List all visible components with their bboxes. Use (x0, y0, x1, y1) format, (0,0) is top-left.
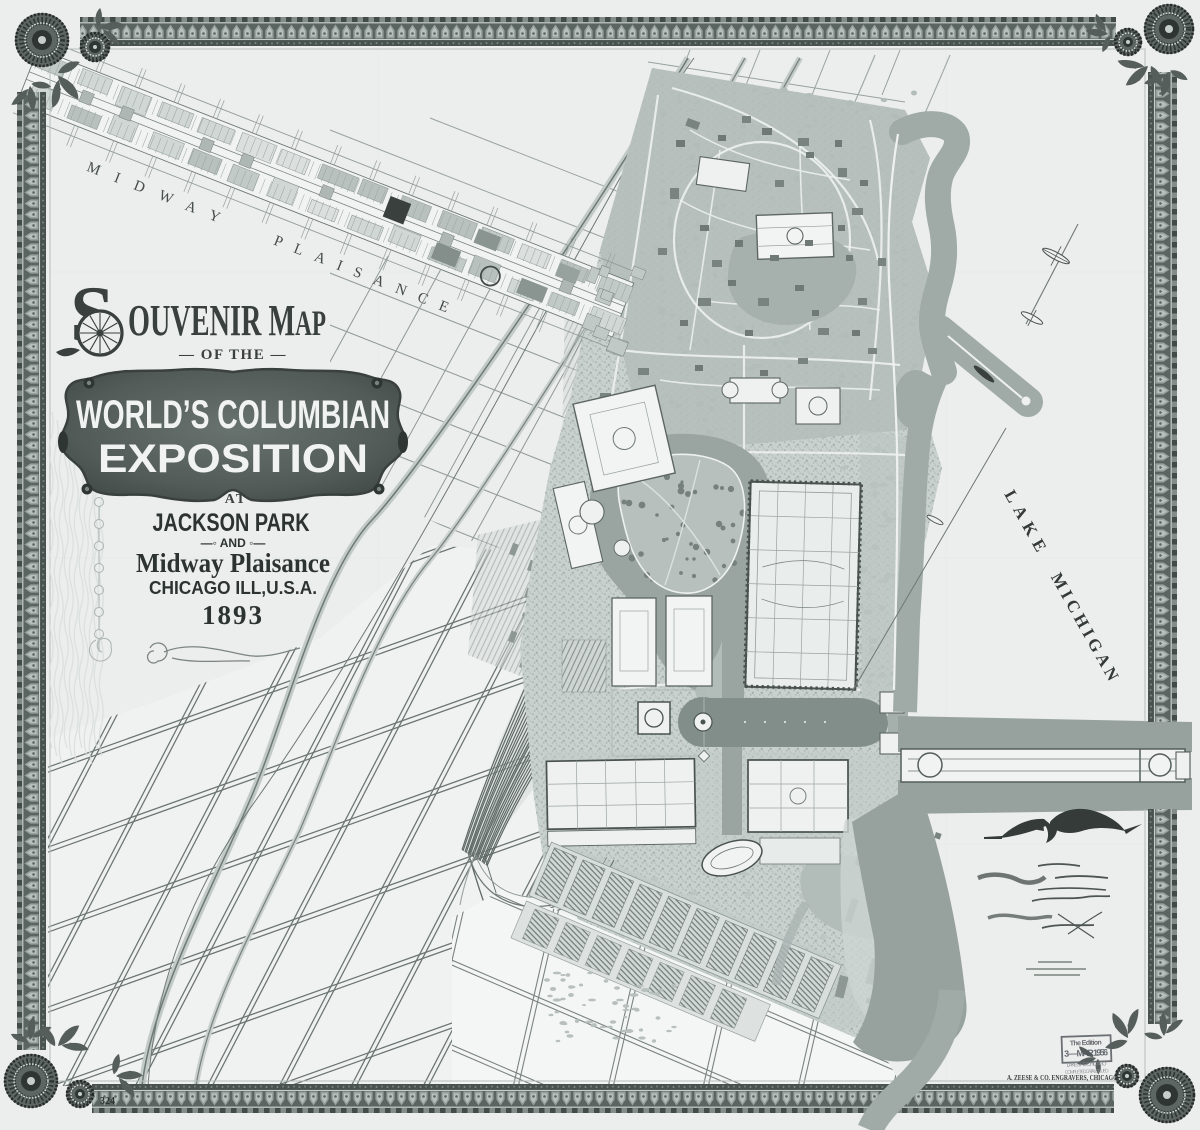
svg-text:The Edition: The Edition (1070, 1039, 1102, 1047)
svg-text:OUVENIR MAP: OUVENIR MAP (128, 296, 326, 345)
svg-text:A. ZEESE & CO. ENGRAVERS, CHIC: A. ZEESE & CO. ENGRAVERS, CHICAGO. (1007, 1073, 1119, 1082)
svg-text:3 — MAR 1956: 3 — MAR 1956 (1064, 1047, 1108, 1059)
svg-text:JACKSON PARK: JACKSON PARK (153, 509, 310, 537)
svg-text:324: 324 (100, 1096, 115, 1107)
svg-text:AT: AT (225, 492, 247, 507)
svg-text:1893: 1893 (202, 600, 264, 630)
svg-text:CHICAGO ILL,U.S.A.: CHICAGO ILL,U.S.A. (149, 578, 317, 598)
svg-text:Midway Plaisance: Midway Plaisance (136, 548, 330, 578)
svg-text:WORLD’S COLUMBIAN: WORLD’S COLUMBIAN (76, 393, 390, 437)
svg-text:EXPOSITION: EXPOSITION (98, 437, 368, 481)
svg-text:— OF THE —: — OF THE — (178, 347, 287, 363)
